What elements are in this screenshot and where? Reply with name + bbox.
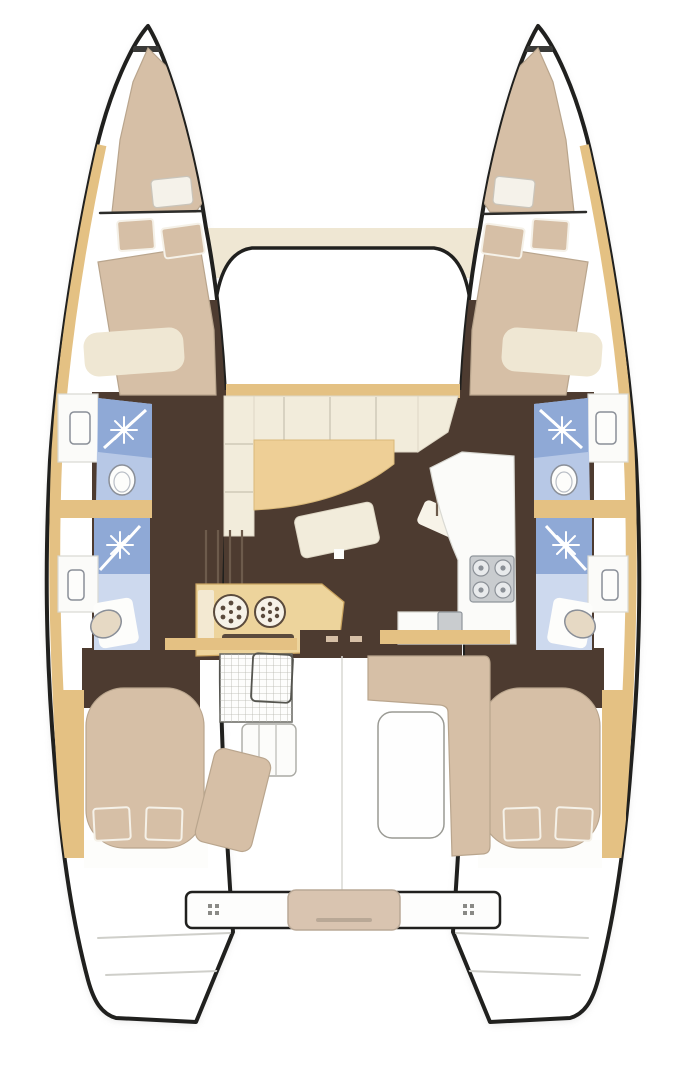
sliding-door-opening xyxy=(300,630,380,654)
starboard-aft-joinery xyxy=(602,690,626,858)
cockpit-grid-table-weave xyxy=(220,654,292,722)
port-fwd-shower-icon xyxy=(111,417,137,443)
platform-step-line xyxy=(316,918,372,922)
starboard-fwd-sink-icon xyxy=(596,412,616,444)
cockpit-sill-port xyxy=(165,638,297,650)
galley-bin xyxy=(438,612,462,632)
starboard-fwd-toilet-icon xyxy=(551,465,577,495)
port-aft-joinery xyxy=(60,690,84,858)
port-forward-pillow-1 xyxy=(117,219,155,251)
port-fwd-toilet-icon xyxy=(109,465,135,495)
starboard-forward-berth-foot xyxy=(501,327,604,378)
starboard-forward-pillow-1 xyxy=(531,219,569,251)
floorplan-canvas xyxy=(0,0,686,1080)
starboard-aft-sink-icon xyxy=(602,570,618,600)
starboard-fwd-shower-icon xyxy=(549,417,575,443)
cockpit-sill-starboard xyxy=(380,630,510,644)
door-handle-2 xyxy=(350,636,362,642)
port-aft-shower-icon xyxy=(107,532,133,558)
starboard-forepeak-pillow xyxy=(493,176,536,208)
port-aft-pillow-2 xyxy=(145,807,182,840)
port-heads-divider xyxy=(58,500,152,518)
starboard-aft-pillow-2 xyxy=(503,807,540,840)
port-forward-pillow-2 xyxy=(161,223,205,258)
starboard-heads-divider xyxy=(534,500,628,518)
starboard-aft-shower-icon xyxy=(553,532,579,558)
port-fwd-sink-icon xyxy=(70,412,90,444)
cockpit-table xyxy=(378,712,444,838)
starboard-forward-pillow-2 xyxy=(481,223,525,258)
dinghy-platform xyxy=(288,890,400,930)
port-forward-berth-foot xyxy=(83,327,186,378)
salon-table-leg xyxy=(334,549,344,559)
starboard-aft-pillow-1 xyxy=(555,807,593,841)
salon-sofa-side xyxy=(224,396,254,536)
door-handle-1 xyxy=(326,636,338,642)
port-aft-sink-icon xyxy=(68,570,84,600)
coachroof-front-fill xyxy=(214,248,472,392)
port-forepeak-pillow xyxy=(151,176,194,208)
catamaran-floorplan xyxy=(0,0,686,1080)
port-aft-pillow-1 xyxy=(93,807,131,841)
